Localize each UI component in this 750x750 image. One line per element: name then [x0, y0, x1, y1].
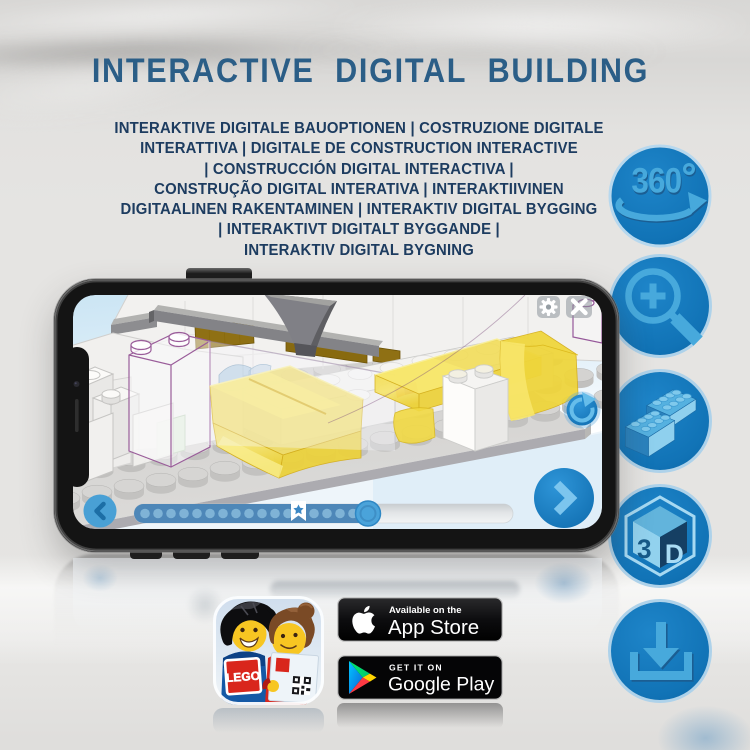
- svg-text:3: 3: [637, 534, 652, 564]
- svg-text:Google Play: Google Play: [388, 674, 494, 696]
- svg-text:LEGO: LEGO: [226, 669, 261, 685]
- svg-text:App Store: App Store: [388, 616, 479, 639]
- svg-text:D: D: [665, 539, 684, 569]
- svg-text:Available on the: Available on the: [389, 605, 462, 616]
- svg-text:360: 360: [631, 162, 681, 201]
- svg-text:GET IT ON: GET IT ON: [389, 663, 443, 673]
